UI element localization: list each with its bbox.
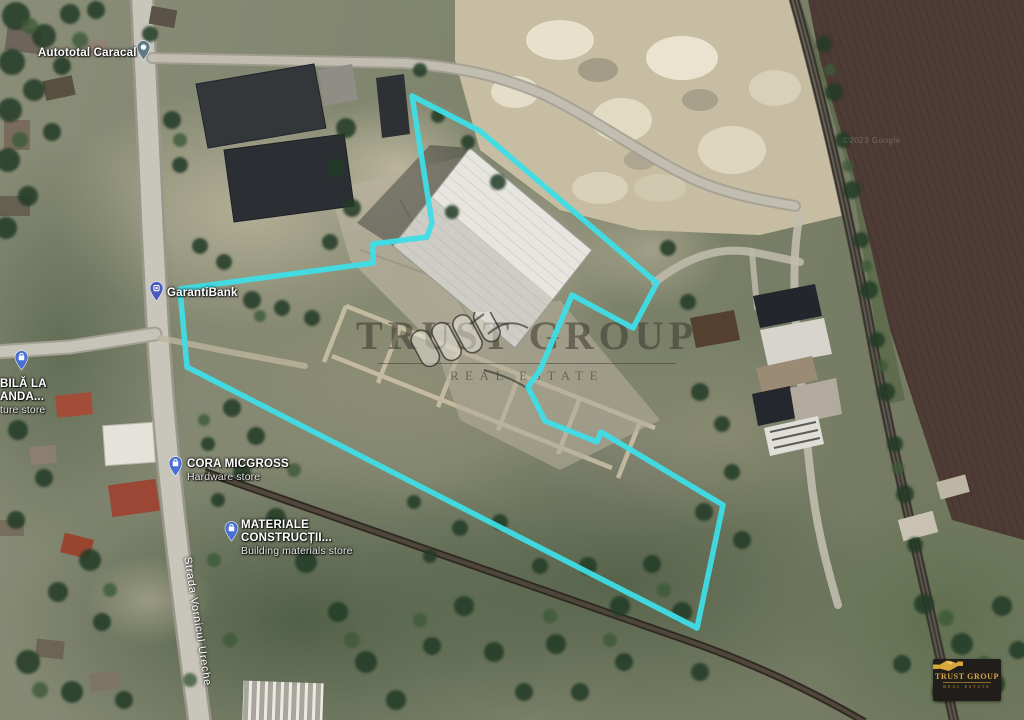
shopping-pin-icon[interactable] (168, 456, 183, 477)
label-cora-name: CORA MICGROSS (187, 458, 289, 471)
brand-logo-subtitle: REAL ESTATE (943, 682, 990, 689)
label-cora[interactable]: CORA MICGROSS Hardware store (187, 458, 289, 484)
label-furniture-category: ture store (0, 404, 47, 417)
label-materiale-line1: MATERIALE (241, 519, 353, 532)
greenhouses (242, 681, 323, 720)
place-pin-icon[interactable] (136, 40, 151, 61)
label-furniture-line2: ANDA... (0, 391, 47, 404)
label-furniture-line1: BILĂ LA (0, 378, 47, 391)
shopping-pin-icon[interactable] (224, 521, 239, 542)
label-garantibank-text: GarantiBank (167, 287, 238, 299)
label-autototal[interactable]: Autototal Caracal (38, 47, 137, 60)
label-materiale-category: Building materials store (241, 545, 353, 558)
label-materiale-line2: CONSTRUCȚII... (241, 532, 353, 545)
satellite-map[interactable]: TRUST GROUP REAL ESTATE Autototal Caraca… (0, 0, 1024, 720)
watermark: TRUST GROUP REAL ESTATE (350, 312, 704, 384)
handshake-icon (350, 312, 540, 392)
shopping-pin-icon[interactable] (14, 350, 29, 371)
map-attribution: ©2023 Google (843, 136, 901, 145)
brand-logo: TRUST GROUP REAL ESTATE (933, 659, 1001, 701)
label-autototal-text: Autototal Caracal (38, 47, 137, 59)
brand-logo-title: TRUST GROUP (935, 672, 999, 681)
label-garantibank[interactable]: GarantiBank (167, 287, 238, 300)
label-cora-category: Hardware store (187, 471, 289, 484)
handshake-gold-icon (933, 659, 963, 672)
label-furniture-store[interactable]: BILĂ LA ANDA... ture store (0, 378, 47, 417)
label-materiale[interactable]: MATERIALE CONSTRUCȚII... Building materi… (241, 519, 353, 558)
garantibank-pin-icon[interactable] (149, 281, 164, 302)
